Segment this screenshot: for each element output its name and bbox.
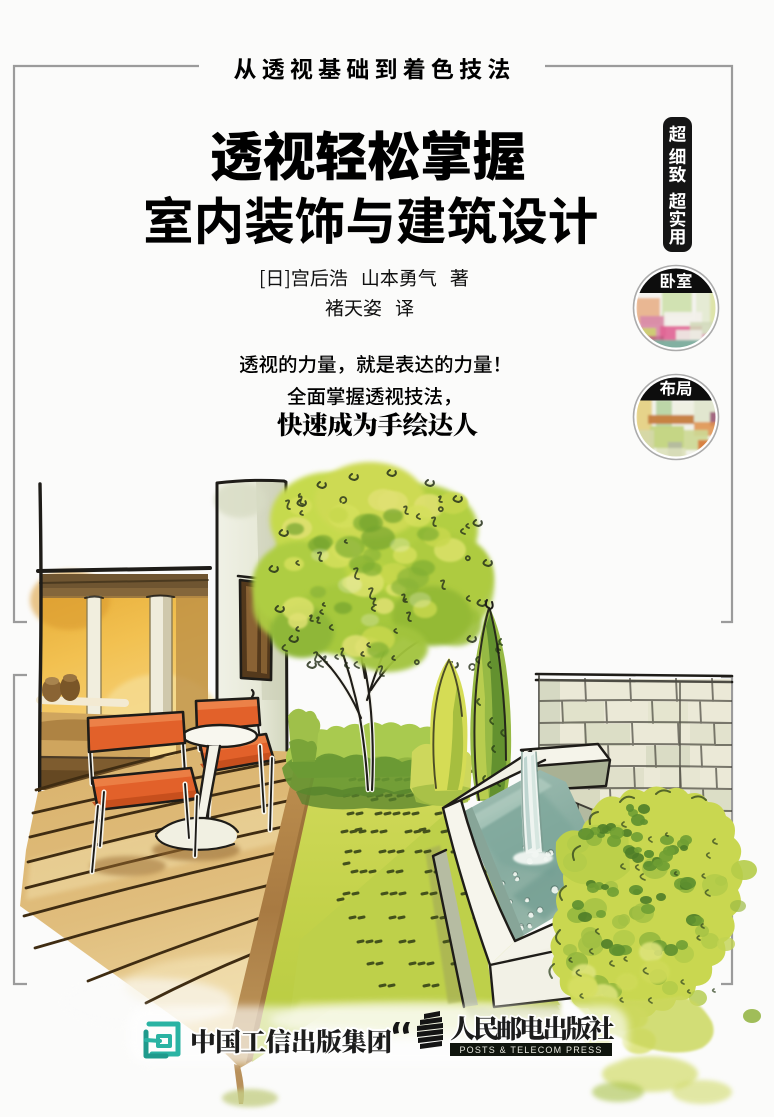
- svg-text:POSTS & TELECOM PRESS: POSTS & TELECOM PRESS: [459, 1045, 602, 1055]
